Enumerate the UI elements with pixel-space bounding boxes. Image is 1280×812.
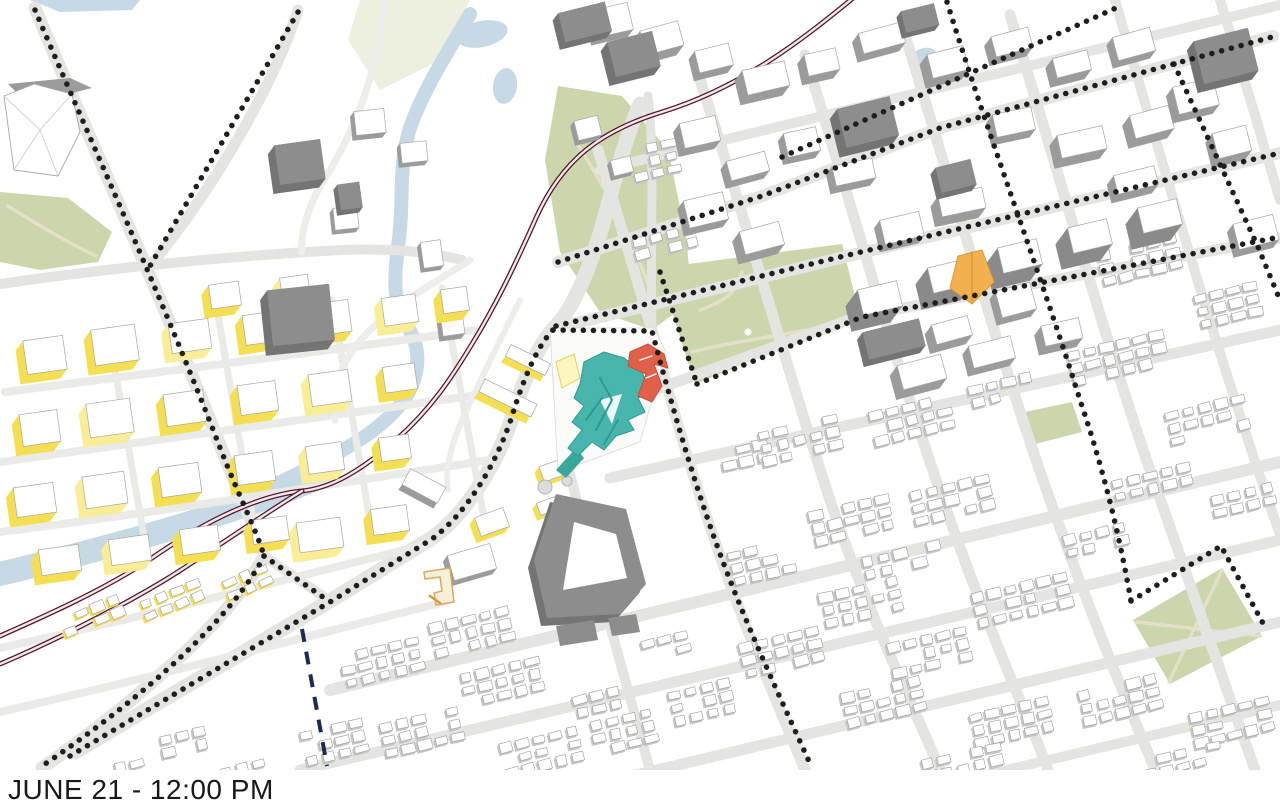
shadow-study-page: JUNE 21 - 12:00 PM <box>0 0 1280 812</box>
date-time-label: JUNE 21 - 12:00 PM <box>8 774 274 806</box>
map-canvas <box>0 0 1280 770</box>
